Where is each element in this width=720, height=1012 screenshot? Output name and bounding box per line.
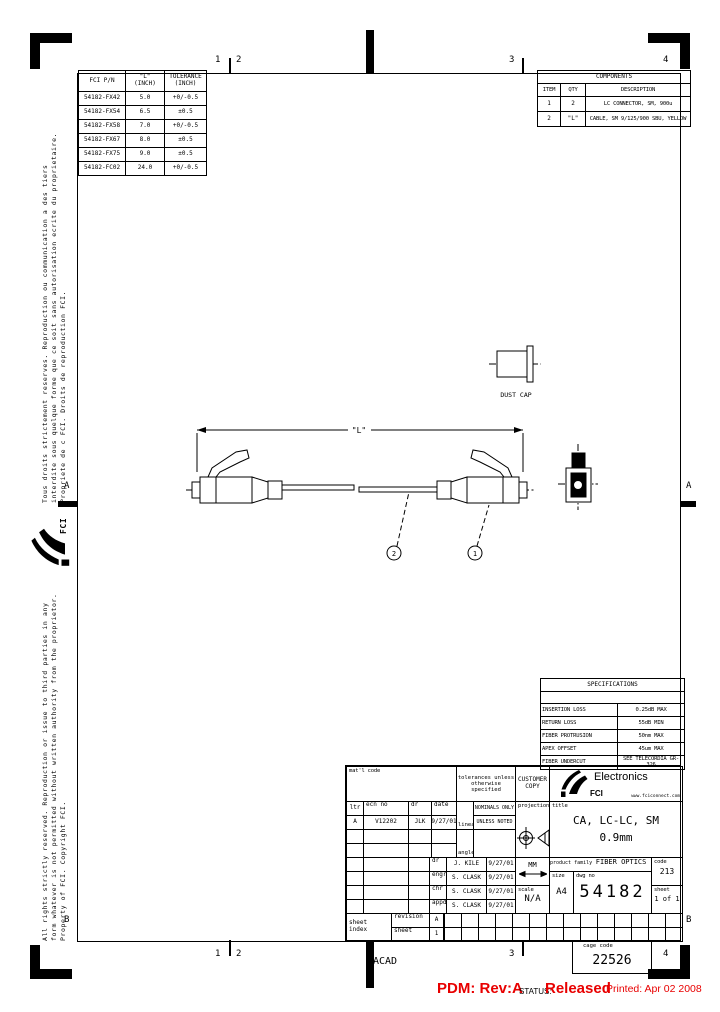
rev-empty-cell xyxy=(363,829,409,844)
rev-empty-cell xyxy=(408,829,432,844)
dwg-no-cell: dwg no 54182 xyxy=(573,871,652,914)
pn-cell: 24.0 xyxy=(126,162,165,176)
zone-tick xyxy=(229,940,231,956)
components-title-row: COMPONENTS xyxy=(538,71,691,84)
copyright-note-english-line3: Property of FCI. Copyright FCI. xyxy=(59,801,67,941)
approval-role: chr xyxy=(429,885,447,900)
approval-role: appd xyxy=(429,899,447,914)
scale-cell: scale N/A xyxy=(515,885,550,914)
corner-mark-top-right-v xyxy=(680,33,690,69)
spec-blank-row xyxy=(541,692,685,704)
components-cell: "L" xyxy=(561,112,586,127)
spec-value: 50nm MAX xyxy=(618,730,685,743)
rev-empty-cell xyxy=(346,843,364,858)
cage-code-label: cage code xyxy=(583,943,613,949)
pn-cell: +0/-0.5 xyxy=(165,162,207,176)
pn-header-tolerance: TOLERANCE (INCH) xyxy=(165,71,207,92)
status-value: Released xyxy=(545,980,611,997)
revision-row-label: revision xyxy=(391,913,430,928)
components-cell: 2 xyxy=(561,97,586,112)
pn-cell: 54182-FX42 xyxy=(79,92,126,106)
cage-code-box: cage code 22526 xyxy=(572,941,652,974)
customer-copy-stamp: CUSTOMER COPY xyxy=(515,766,550,802)
rev-dr: JLK xyxy=(408,815,432,830)
spec-name: INSERTION LOSS xyxy=(541,704,618,717)
brand-cell: Electronics FCI www.fciconnect.com xyxy=(549,766,683,802)
title-label: title xyxy=(552,803,568,809)
rev-empty-cell xyxy=(346,829,364,844)
rev-empty-cell xyxy=(431,843,457,858)
approval-date: 9/27/01 xyxy=(486,899,516,914)
components-header-qty: QTY xyxy=(561,84,586,97)
tolerances-note-cell: tolerances unless otherwise specified xyxy=(456,766,516,802)
pn-row: 54182-FX58 7.0 +0/-0.5 xyxy=(79,120,207,134)
rev-empty-cell xyxy=(363,857,409,872)
pn-cell: ±0.5 xyxy=(165,134,207,148)
fci-logo-icon xyxy=(558,769,588,799)
spec-title: SPECIFICATIONS xyxy=(541,679,685,692)
lc-connector-left xyxy=(192,450,282,503)
acad-label: ACAD xyxy=(373,956,397,967)
drawing-sheet: 1 2 3 4 1 2 3 4 A B A B Tous droits stri… xyxy=(0,0,720,1012)
pn-row: 54182-FX75 9.0 ±0.5 xyxy=(79,148,207,162)
components-row: 2 "L" CABLE, SM 9/125/900 SBU, YELLOW xyxy=(538,112,691,127)
unless-noted-cell: UNLESS NOTED xyxy=(473,815,516,830)
sheet-label: sheet xyxy=(654,887,670,893)
fci-logo-icon xyxy=(30,528,72,570)
spec-row: RETURN LOSS 55dB MIN xyxy=(541,717,685,730)
connector-end-view xyxy=(558,444,598,510)
scale-label: scale xyxy=(518,887,534,893)
pn-cell: 7.0 xyxy=(126,120,165,134)
code-cell: code 213 xyxy=(651,857,683,886)
zone-tick xyxy=(522,58,524,74)
third-angle-projection-icon xyxy=(517,826,550,850)
pn-cell: 54182-FC02 xyxy=(79,162,126,176)
corner-mark-bottom-left-v xyxy=(30,945,40,979)
fci-logo-rotated xyxy=(30,528,72,570)
components-header-desc: DESCRIPTION xyxy=(586,84,691,97)
sheet-cell: sheet 1 of 1 xyxy=(651,885,683,914)
sheet-row-value: 1 xyxy=(429,927,444,942)
zone-letter: A xyxy=(686,482,691,491)
rev-header-ecn: ecn no xyxy=(363,801,409,816)
pdm-rev-text: PDM: Rev:A xyxy=(437,980,523,997)
size-cell: size A4 xyxy=(549,871,574,914)
components-row: 1 2 LC CONNECTOR, SM, 900u xyxy=(538,97,691,112)
zone-number: 2 xyxy=(236,950,241,959)
zone-tick xyxy=(229,58,231,74)
rev-ecn: V12202 xyxy=(363,815,409,830)
rev-empty-cell xyxy=(346,885,364,900)
rev-empty-cell xyxy=(408,857,430,872)
linear-cell: linear xyxy=(456,801,474,830)
spec-name: RETURN LOSS xyxy=(541,717,618,730)
balloon-cable xyxy=(387,492,409,560)
rev-empty-cell xyxy=(346,899,364,914)
cable-segment-left xyxy=(282,485,354,490)
zone-mid-mark-right xyxy=(681,501,696,507)
pn-cell: 54182-FX58 xyxy=(79,120,126,134)
components-title: COMPONENTS xyxy=(538,71,691,84)
components-cell: CABLE, SM 9/125/900 SBU, YELLOW xyxy=(586,112,691,127)
pn-row: 54182-FC02 24.0 +0/-0.5 xyxy=(79,162,207,176)
rev-empty-cell xyxy=(431,829,457,844)
approval-name: J. KILE xyxy=(446,857,487,872)
rev-empty-cell xyxy=(363,843,409,858)
rev-header-date: date xyxy=(431,801,457,816)
approval-date: 9/27/01 xyxy=(486,885,516,900)
pn-cell: 6.5 xyxy=(126,106,165,120)
dust-cap-drawing xyxy=(489,346,541,382)
zone-number: 4 xyxy=(663,56,668,65)
projection-label: projection xyxy=(518,803,549,809)
product-family-value: FIBER OPTICS xyxy=(596,858,647,866)
pn-row: 54182-FX42 5.0 +0/-0.5 xyxy=(79,92,207,106)
pn-cell: 8.0 xyxy=(126,134,165,148)
brand-name: FCI xyxy=(590,789,603,798)
pn-cell: 5.0 xyxy=(126,92,165,106)
pn-cell: ±0.5 xyxy=(165,148,207,162)
part-number-table: FCI P/N "L" (INCH) TOLERANCE (INCH) 5418… xyxy=(78,70,207,176)
rev-ltr: A xyxy=(346,815,364,830)
balloon-connector xyxy=(468,505,489,560)
pn-cell: +0/-0.5 xyxy=(165,92,207,106)
approval-name: S. CLASK xyxy=(446,871,487,886)
printed-date: Printed: Apr 02 2008 xyxy=(606,983,702,995)
approval-name: S. CLASK xyxy=(446,885,487,900)
rev-empty-cell xyxy=(363,871,409,886)
components-header-row: ITEM QTY DESCRIPTION xyxy=(538,84,691,97)
revision-row-value: A xyxy=(429,913,444,928)
copyright-note-english-line2: form whatever is not permitted without w… xyxy=(50,593,58,941)
approval-date: 9/27/01 xyxy=(486,871,516,886)
rev-empty-cell xyxy=(346,857,364,872)
cable-segment-right xyxy=(359,487,437,492)
components-cell: 1 xyxy=(538,97,561,112)
spec-value: 55dB MIN xyxy=(618,717,685,730)
rev-header-dr: dr xyxy=(408,801,432,816)
copyright-note-french-line1: Tous droits strictement reserves. Reprod… xyxy=(41,165,49,504)
pn-cell: ±0.5 xyxy=(165,106,207,120)
copyright-note-french-line3: Propriete de c FCI. Droits de reproducti… xyxy=(59,291,67,503)
corner-mark-bottom-right-v xyxy=(680,945,690,979)
balloon-connector-number: 1 xyxy=(473,550,477,558)
nominals-cell: NOMINALS ONLY xyxy=(473,801,516,816)
zone-number: 3 xyxy=(509,56,514,65)
copyright-note-french-line2: interdite sous quelque forme que ce soit… xyxy=(50,133,58,503)
projection-cell: projection xyxy=(515,801,550,858)
spec-row: FIBER PROTRUSION 50nm MAX xyxy=(541,730,685,743)
sheet-index-cell: sheet index xyxy=(346,913,392,941)
tolerance-empty-cell xyxy=(473,829,516,858)
material-code-cell: mat'l code xyxy=(346,766,457,802)
components-cell: LC CONNECTOR, SM, 900u xyxy=(586,97,691,112)
components-cell: 2 xyxy=(538,112,561,127)
zone-number: 4 xyxy=(663,950,668,959)
rev-empty-cell xyxy=(346,871,364,886)
spec-row: APEX OFFSET 45um MAX xyxy=(541,743,685,756)
corner-mark-top-left-v xyxy=(30,33,40,69)
pn-header-row: FCI P/N "L" (INCH) TOLERANCE (INCH) xyxy=(79,71,207,92)
rev-empty-cell xyxy=(408,885,430,900)
brand-site: www.fciconnect.com xyxy=(631,794,680,799)
dust-cap-label: DUST CAP xyxy=(500,391,531,399)
approval-name: S. CLASK xyxy=(446,899,487,914)
drawing-title: CA, LC-LC, SM 0.9mm xyxy=(550,802,682,857)
size-label: size xyxy=(552,873,564,879)
copyright-note-english-line1: All rights strictly reserved. Reproducti… xyxy=(41,603,49,942)
material-code-label: mat'l code xyxy=(349,768,380,774)
product-family-cell: product family FIBER OPTICS xyxy=(549,857,652,872)
title-cell: title CA, LC-LC, SM 0.9mm xyxy=(549,801,683,858)
zone-center-bar-top xyxy=(366,30,374,74)
double-arrow-icon xyxy=(519,870,547,878)
spec-name: APEX OFFSET xyxy=(541,743,618,756)
spec-row: INSERTION LOSS 0.25dB MAX xyxy=(541,704,685,717)
rev-empty-cell xyxy=(408,843,432,858)
zone-number: 1 xyxy=(215,56,220,65)
spec-blank-cell xyxy=(541,692,685,704)
approval-role: engr xyxy=(429,871,447,886)
spec-value: 0.25dB MAX xyxy=(618,704,685,717)
pn-cell: 54182-FX67 xyxy=(79,134,126,148)
specifications-table: SPECIFICATIONS INSERTION LOSS 0.25dB MAX… xyxy=(540,678,685,770)
zone-letter: B xyxy=(686,916,691,925)
zone-number: 1 xyxy=(215,950,220,959)
components-table: COMPONENTS ITEM QTY DESCRIPTION 1 2 LC C… xyxy=(537,70,691,127)
rev-empty-cell xyxy=(408,871,430,886)
pn-row: 54182-FX67 8.0 ±0.5 xyxy=(79,134,207,148)
dimension-label: "L" xyxy=(352,426,366,435)
spec-value: 45um MAX xyxy=(618,743,685,756)
lc-connector-right xyxy=(437,450,527,503)
rev-empty-cell xyxy=(363,899,409,914)
pn-cell: 9.0 xyxy=(126,148,165,162)
units-value: MM xyxy=(516,861,549,869)
zone-tick xyxy=(522,940,524,956)
balloon-cable-number: 2 xyxy=(392,550,396,558)
zone-number: 3 xyxy=(509,950,514,959)
cable-assembly-drawing: DUST CAP "L" xyxy=(150,330,620,580)
pn-cell: 54182-FX75 xyxy=(79,148,126,162)
units-cell: MM xyxy=(515,857,550,886)
approval-date: 9/27/01 xyxy=(486,857,516,872)
approval-role: dr xyxy=(429,857,447,872)
pn-header-pn: FCI P/N xyxy=(79,71,126,92)
spec-name: FIBER PROTRUSION xyxy=(541,730,618,743)
rev-date: 9/27/01 xyxy=(431,815,457,830)
sheet-row-empty-cells xyxy=(443,927,683,942)
dwg-no-label: dwg no xyxy=(576,873,595,879)
rev-empty-cell xyxy=(363,885,409,900)
rev-empty-cell xyxy=(408,899,430,914)
rev-header-ltr: ltr xyxy=(346,801,364,816)
product-family-label: product family xyxy=(550,860,592,866)
sheet-row-label: sheet xyxy=(391,927,430,942)
spec-title-row: SPECIFICATIONS xyxy=(541,679,685,692)
zone-number: 2 xyxy=(236,56,241,65)
revision-row-empty-cells xyxy=(443,913,683,928)
brand-tagline: Electronics xyxy=(594,771,648,784)
pn-cell: +0/-0.5 xyxy=(165,120,207,134)
pn-cell: 54182-FX54 xyxy=(79,106,126,120)
components-header-item: ITEM xyxy=(538,84,561,97)
angles-cell: angles xyxy=(456,829,474,858)
pn-header-length: "L" (INCH) xyxy=(126,71,165,92)
title-block: mat'l code tolerances unless otherwise s… xyxy=(345,765,681,941)
code-label: code xyxy=(654,859,666,865)
pn-row: 54182-FX54 6.5 ±0.5 xyxy=(79,106,207,120)
